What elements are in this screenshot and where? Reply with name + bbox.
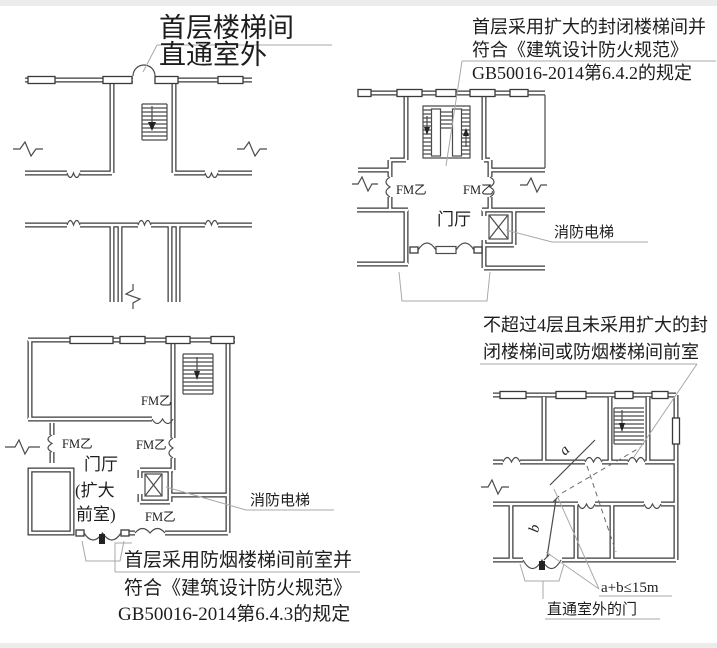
- fire-door-label: FM乙: [463, 183, 494, 197]
- wall-core: [357, 93, 545, 268]
- window-symbols: [500, 392, 680, 445]
- plan-travel-distance-limit: 不超过4层且未采用扩大的封 闭楼梯间或防烟楼梯间前室 a b a+b≤15m 直…: [480, 315, 708, 619]
- annotation-enclosed-stairwell-line3: GB50016-2014第6.4.2的规定: [472, 63, 692, 83]
- annotation-enclosed-stairwell-line1: 首层采用扩大的封闭楼梯间并: [472, 17, 706, 37]
- wall-core: [28, 340, 235, 533]
- wall-outline: [357, 93, 545, 268]
- fire-door-label: FM乙: [62, 437, 93, 451]
- lobby-label-line2: (扩大: [75, 481, 115, 500]
- fire-elevator-label: 消防电梯: [554, 224, 614, 241]
- annotation-smokeproof-anteroom-line2: 符合《建筑设计防火规范》: [124, 577, 352, 599]
- annotation-four-floor-limit-line1: 不超过4层且未采用扩大的封: [483, 315, 708, 335]
- annotation-smokeproof-anteroom-line1: 首层采用防烟楼梯间前室并: [124, 549, 352, 571]
- annotation-direct-to-outside: 直通室外: [159, 40, 267, 70]
- fire-elevator-label: 消防电梯: [250, 492, 310, 509]
- wall-core: [493, 395, 676, 560]
- dimension-label-a: a: [557, 442, 574, 459]
- wall-core: [25, 80, 252, 302]
- interior-door-swing-icons: [503, 458, 661, 509]
- exit-door-icon: [523, 560, 561, 570]
- plan-first-floor-stairwell-direct-exit: 首层楼梯间 直通室外: [13, 13, 332, 309]
- interior-door-swing-icons: [67, 173, 218, 225]
- lobby-label: 门厅: [437, 210, 471, 229]
- exit-door-label: 直通室外的门: [547, 601, 637, 618]
- fire-door-label: FM乙: [145, 510, 176, 524]
- entrance-double-door-icon: [76, 530, 129, 544]
- break-mark-icon: [5, 440, 40, 454]
- staircase-icon: [423, 106, 470, 158]
- leader-lines: [480, 364, 697, 619]
- staircase-icon: [142, 104, 167, 140]
- distance-formula-label: a+b≤15m: [601, 580, 659, 596]
- staircase-icon: [183, 354, 213, 394]
- dimension-label-b: b: [526, 523, 543, 534]
- break-mark-icon: [481, 480, 509, 494]
- plan-enlarged-enclosed-stairwell: 首层采用扩大的封闭楼梯间并 符合《建筑设计防火规范》 GB50016-2014第…: [352, 17, 716, 301]
- fire-door-label: FM乙: [396, 183, 427, 197]
- wall-outline: [28, 340, 235, 533]
- annotation-four-floor-limit-line2: 闭楼梯间或防烟楼梯间前室: [483, 342, 699, 362]
- annotation-enclosed-stairwell-line2: 符合《建筑设计防火规范》: [472, 40, 688, 60]
- annotation-smokeproof-anteroom-line3: GB50016-2014第6.4.3的规定: [118, 603, 350, 625]
- entrance-double-door-icon: [410, 243, 482, 254]
- lobby-label-line3: 前室): [76, 505, 116, 524]
- bottom-edge-band: [0, 643, 717, 648]
- fire-door-label: FM乙: [136, 438, 167, 452]
- staircase-icon: [614, 408, 644, 444]
- wall-outline: [25, 80, 252, 302]
- lobby-label-line1: 门厅: [84, 455, 118, 474]
- floor-plan-diagram: 首层楼梯间 直通室外: [0, 0, 717, 648]
- top-edge-band: [0, 0, 717, 6]
- plan-smokeproof-stairwell-anteroom: FM乙 FM乙 FM乙 FM乙 门厅 (扩大 前室) 消防电梯 首层采用防烟楼梯…: [5, 337, 360, 626]
- fire-code-floor-plan-figure: 首层楼梯间 直通室外: [0, 0, 717, 648]
- fire-elevator-icon: [145, 474, 162, 496]
- fire-door-label: FM乙: [141, 394, 172, 408]
- annotation-first-floor-stairwell: 首层楼梯间: [159, 13, 294, 43]
- fire-elevator-icon: [489, 215, 508, 239]
